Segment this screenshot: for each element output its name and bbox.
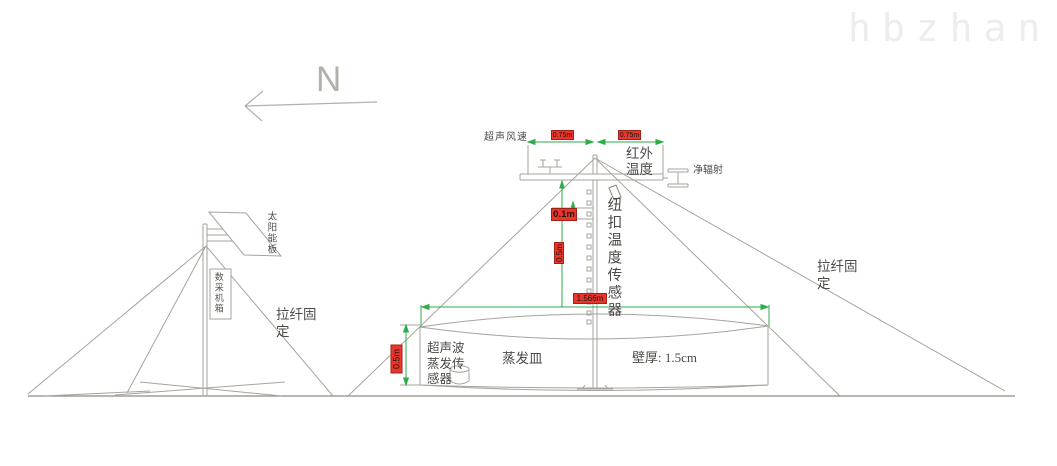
dim-pan-depth: 0.5m xyxy=(391,345,403,374)
north-arrow xyxy=(245,91,377,121)
north-label: N xyxy=(316,60,341,100)
diagram-canvas xyxy=(0,0,1057,466)
anemometer-icon xyxy=(538,160,562,174)
dim-right-arm: 0.75m xyxy=(618,130,641,140)
left-tower xyxy=(28,212,333,396)
net-radiation-label: 净辐射 xyxy=(693,165,723,177)
dim-pole-section: 0.5m xyxy=(554,242,564,264)
net-radiation-sensor-icon xyxy=(663,169,688,187)
wind-sensor-label: 超声风速 xyxy=(484,132,528,144)
left-tower-base-braces xyxy=(45,382,285,396)
solar-panel-label: 太阳能板 xyxy=(264,211,275,255)
guy-wire-label-left: 拉纤固定 xyxy=(276,306,320,340)
pan-label: 蒸发皿 xyxy=(502,351,543,367)
main-mast xyxy=(593,180,597,388)
logger-box-label: 数采机箱 xyxy=(213,272,224,314)
diagram-page: hbzhan.com N 超声风速 红外温度 净辐射 纽扣温度传感器 太阳能板 … xyxy=(0,0,1057,466)
ir-temp-label: 红外温度 xyxy=(626,146,656,178)
evap-sensor-label: 超声波蒸发传感器 xyxy=(427,341,467,388)
dim-sensor-offset: 0.1m xyxy=(551,208,577,221)
wall-thickness-label: 壁厚: 1.5cm xyxy=(632,350,697,366)
dim-pan-diameter: 1.566m xyxy=(573,293,607,304)
watermark: hbzhan.com xyxy=(848,6,1057,50)
guy-wire-label-right: 拉纤固定 xyxy=(817,258,861,292)
dim-left-arm: 0.75m xyxy=(551,130,574,140)
